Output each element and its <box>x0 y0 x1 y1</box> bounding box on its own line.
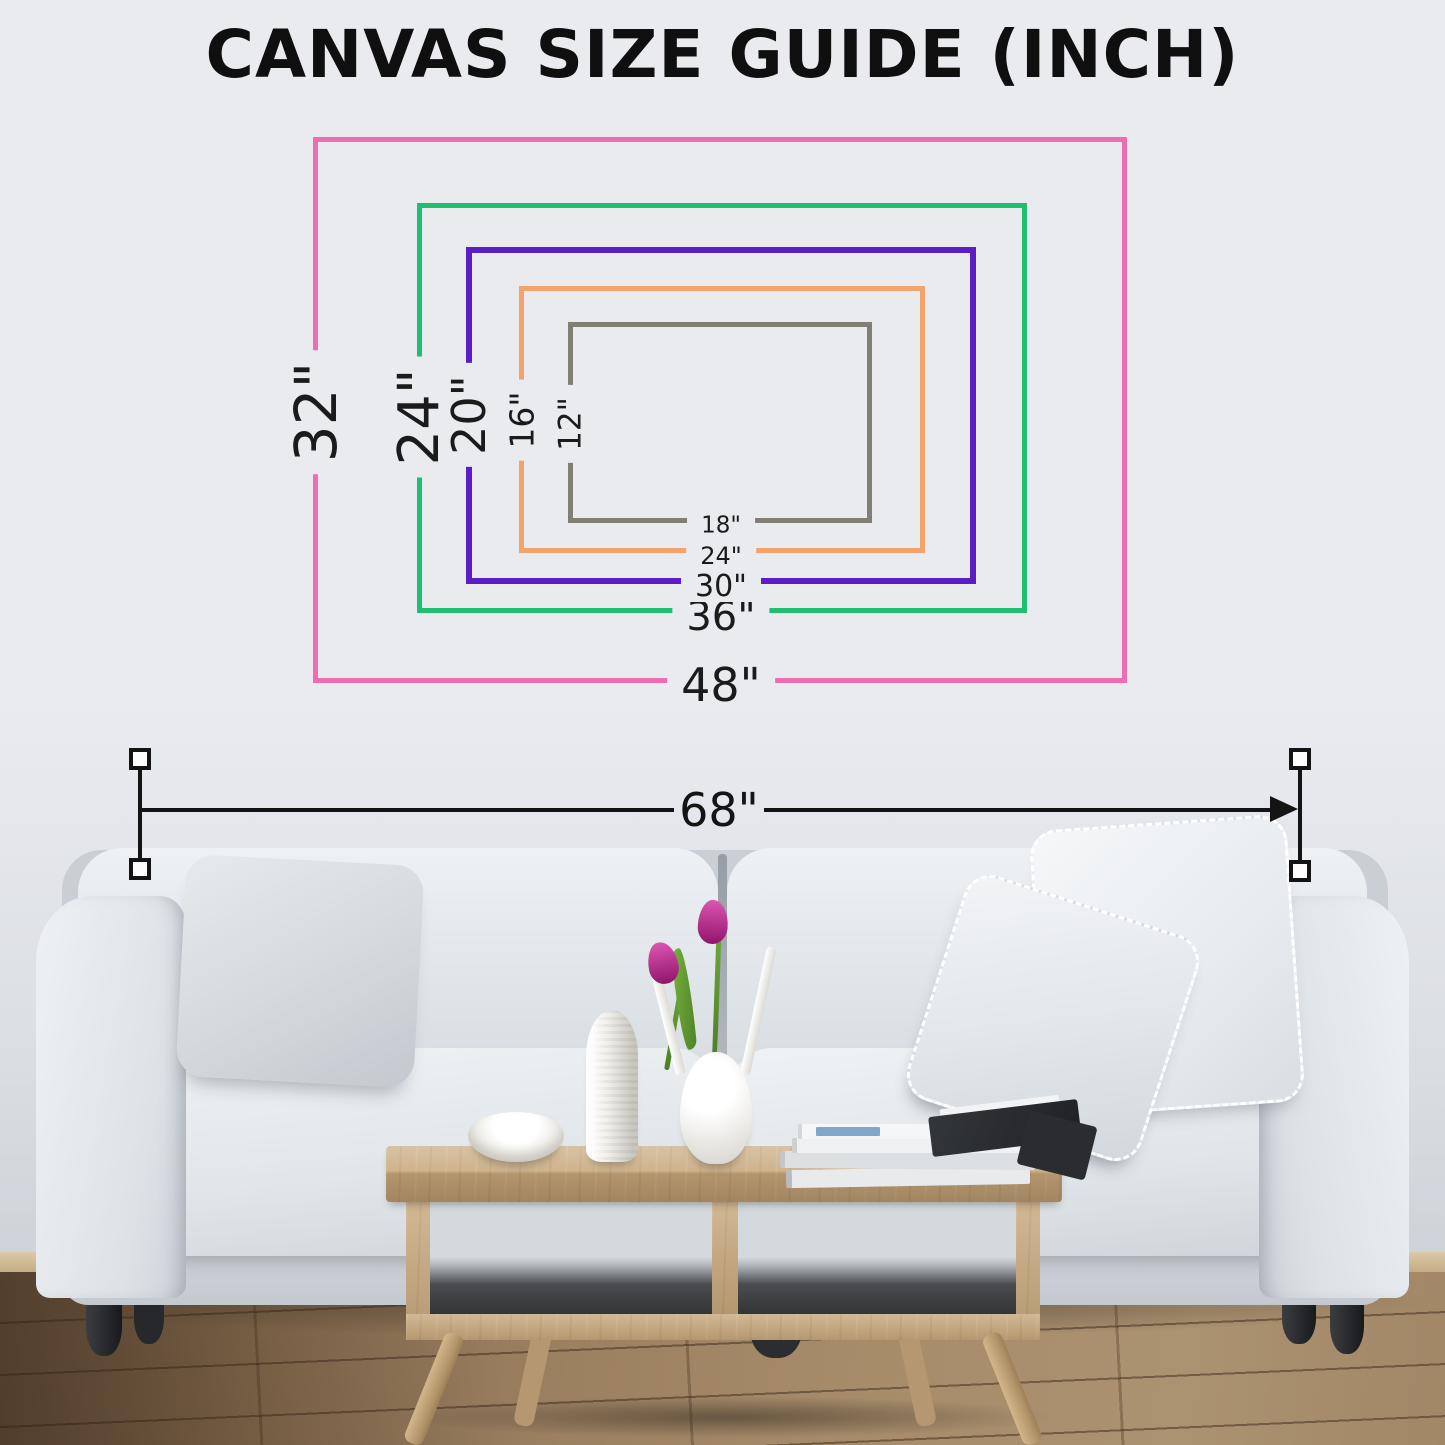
measure-endpoint-square <box>1289 860 1311 882</box>
height-label-16: 16" <box>504 379 541 460</box>
tall-vase <box>586 1010 638 1162</box>
width-label-24: 24" <box>686 544 756 568</box>
table-bottom-shelf <box>406 1314 1040 1340</box>
height-label-12: 12" <box>554 385 589 463</box>
width-label-48: 48" <box>667 662 775 708</box>
measure-endpoint-square <box>129 748 151 770</box>
page-title: CANVAS SIZE GUIDE (INCH) <box>0 16 1445 93</box>
measure-endpoint-square <box>129 858 151 880</box>
measure-line-right-segment <box>764 808 1274 812</box>
wall-width-value: 68" <box>679 787 759 833</box>
stacked-book <box>780 1151 1035 1170</box>
height-label-32: 32" <box>285 350 347 474</box>
gray-throw-pillow <box>175 854 424 1088</box>
canvas-size-guide-infographic: 32" 48" 24" 36" 20" 30" 16" 24" 12" 18" … <box>0 0 1445 1445</box>
measure-bracket-left <box>138 757 142 867</box>
canvas-outline-18x12: 12" 18" <box>568 322 872 523</box>
measure-bracket-right <box>1298 757 1302 869</box>
measure-endpoint-square <box>1289 748 1311 770</box>
height-label-20: 20" <box>444 363 494 467</box>
width-label-18: 18" <box>687 515 755 538</box>
measure-line-left-segment <box>142 808 674 812</box>
sofa-armrest-left <box>36 896 186 1298</box>
arrow-right-icon <box>1270 796 1298 822</box>
table-shelf-divider <box>712 1200 738 1314</box>
table-floor-shadow <box>398 1396 1058 1438</box>
width-label-30: 30" <box>681 572 761 602</box>
height-label-24: 24" <box>390 356 450 477</box>
book-cover-art <box>816 1127 880 1136</box>
